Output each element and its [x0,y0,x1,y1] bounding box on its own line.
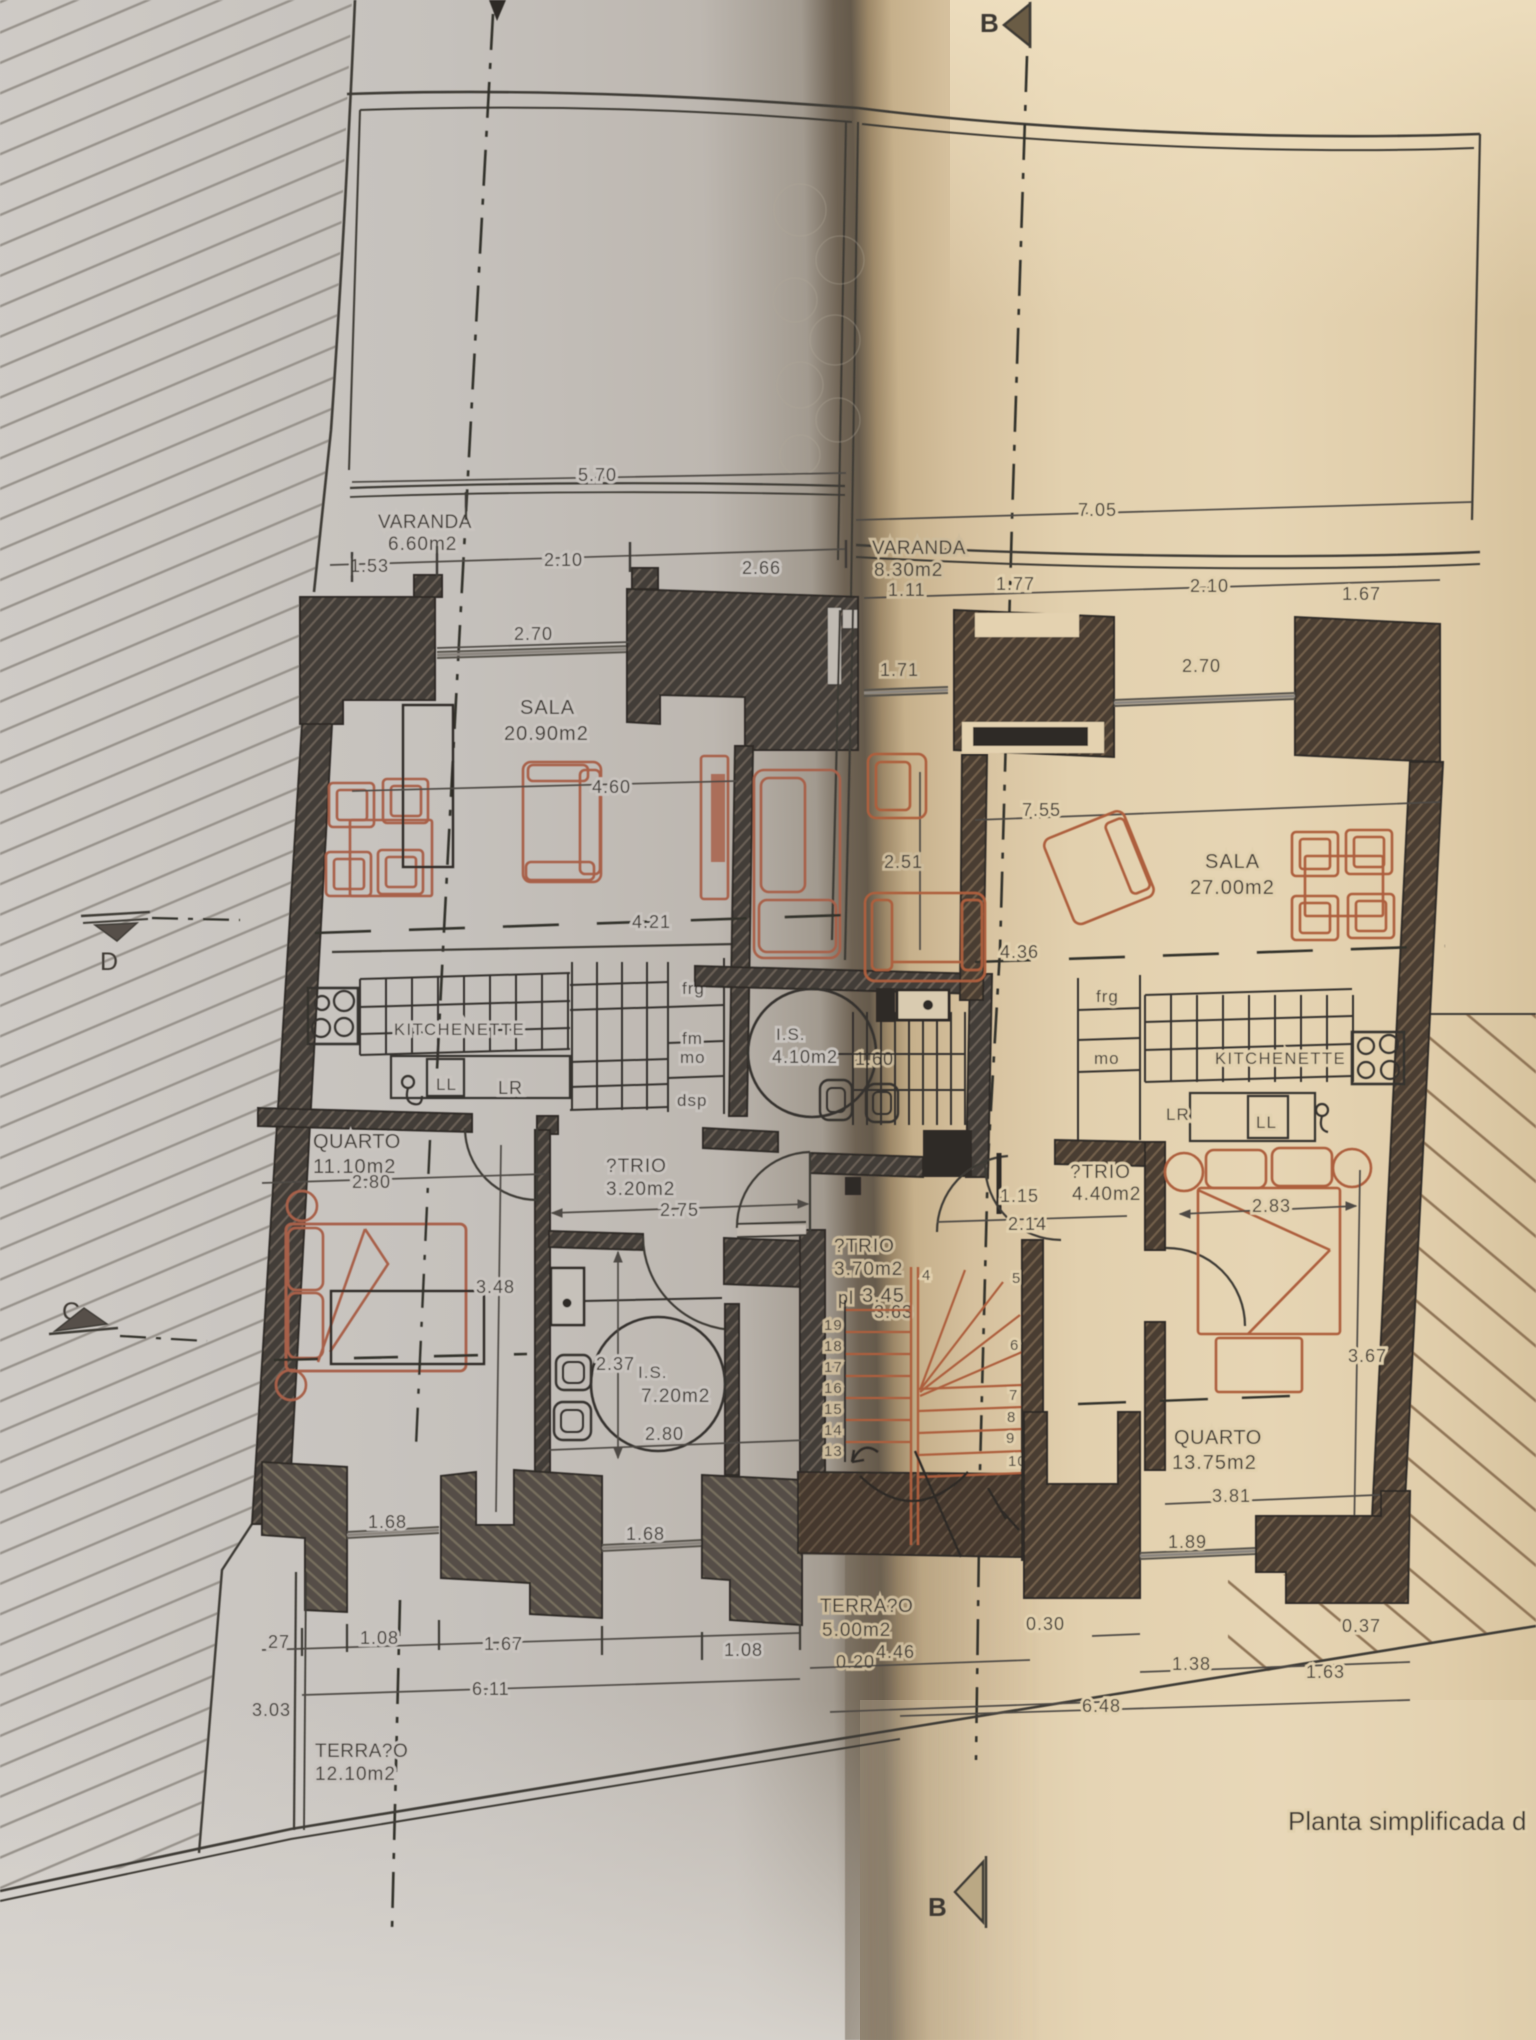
svg-text:mo: mo [680,1048,706,1067]
svg-text:4.60: 4.60 [592,777,631,797]
svg-text:6.48: 6.48 [1082,1696,1121,1716]
svg-text:LR: LR [498,1078,523,1098]
svg-text:4.40m2: 4.40m2 [1072,1184,1141,1205]
svg-text:1.71: 1.71 [880,660,919,680]
svg-text:QUARTO: QUARTO [1174,1427,1262,1449]
svg-text:12.10m2: 12.10m2 [315,1764,396,1785]
svg-text:2.10: 2.10 [544,550,583,570]
svg-text:7: 7 [1009,1387,1018,1404]
svg-text:4: 4 [922,1267,931,1284]
svg-text:4.46: 4.46 [876,1642,915,1662]
svg-text:pl: pl [838,1288,854,1308]
svg-text:2.66: 2.66 [742,558,781,578]
svg-text:D: D [100,948,118,976]
svg-text:2.51: 2.51 [884,852,923,872]
svg-text:3.20m2: 3.20m2 [606,1179,675,1200]
svg-text:1.89: 1.89 [1168,1532,1207,1552]
svg-text:1.63: 1.63 [1306,1662,1345,1682]
svg-text:KITCHENETTE: KITCHENETTE [1215,1050,1346,1068]
svg-text:1.08: 1.08 [724,1640,763,1660]
svg-text:LR: LR [1166,1105,1190,1124]
svg-text:17: 17 [824,1359,843,1376]
svg-text:4.36: 4.36 [1000,942,1039,962]
svg-text:2.10: 2.10 [1190,576,1229,596]
svg-text:mo: mo [1094,1049,1120,1068]
svg-text:1.67: 1.67 [1342,584,1381,604]
svg-text:15: 15 [824,1401,843,1418]
svg-text:3.67: 3.67 [1348,1346,1387,1366]
svg-text:1.67: 1.67 [484,1634,523,1654]
svg-text:2.83: 2.83 [1252,1196,1291,1216]
svg-text:4.21: 4.21 [632,912,671,932]
svg-text:13.75m2: 13.75m2 [1172,1452,1257,1474]
svg-text:2.70: 2.70 [514,624,553,644]
svg-text:2.80: 2.80 [645,1424,684,1444]
svg-text:1.53: 1.53 [350,556,389,576]
svg-text:1.77: 1.77 [996,574,1035,594]
svg-text:dsp: dsp [677,1091,707,1110]
svg-text:LL: LL [436,1075,457,1094]
svg-text:3.81: 3.81 [1212,1486,1251,1506]
svg-text:SALA: SALA [520,697,575,719]
svg-text:6.11: 6.11 [472,1679,510,1699]
svg-text:7.05: 7.05 [1078,500,1117,520]
svg-text:4.10m2: 4.10m2 [772,1047,838,1067]
svg-text:1.68: 1.68 [368,1512,407,1532]
svg-text:16: 16 [824,1380,843,1397]
svg-text:2.70: 2.70 [1182,656,1221,676]
svg-text:QUARTO: QUARTO [313,1131,401,1153]
svg-text:5: 5 [1012,1270,1021,1287]
svg-text:frg: frg [1096,987,1119,1006]
svg-text:8: 8 [1007,1409,1016,1426]
svg-text:0.30: 0.30 [1026,1614,1065,1634]
svg-text:1.38: 1.38 [1172,1654,1211,1674]
svg-text:14: 14 [824,1422,843,1439]
svg-text:1.60: 1.60 [855,1049,894,1069]
svg-text:Planta simplificada d: Planta simplificada d [1288,1806,1526,1836]
svg-text:7.55: 7.55 [1022,800,1061,820]
svg-text:1.68: 1.68 [626,1524,665,1544]
svg-text:LL: LL [1256,1113,1277,1132]
svg-text:TERRA?O: TERRA?O [820,1596,913,1617]
svg-text:27.00m2: 27.00m2 [1190,877,1275,899]
svg-text:0.20: 0.20 [836,1652,875,1672]
svg-text:1.08: 1.08 [360,1628,399,1648]
svg-text:3.63: 3.63 [874,1302,913,1322]
svg-text:B: B [928,1892,947,1922]
svg-text:fm: fm [682,1029,703,1048]
svg-text:6: 6 [1010,1337,1019,1354]
svg-text:3.48: 3.48 [476,1277,515,1297]
svg-text:19: 19 [824,1317,843,1334]
svg-text:VARANDA: VARANDA [872,538,966,559]
svg-text:B: B [980,8,999,38]
svg-text:SALA: SALA [1205,851,1260,873]
svg-text:0.37: 0.37 [1342,1616,1381,1636]
svg-text:KITCHENETTE: KITCHENETTE [394,1021,525,1039]
svg-text:?TRIO: ?TRIO [1070,1162,1131,1183]
svg-text:18: 18 [824,1338,843,1355]
svg-text:I.S.: I.S. [776,1025,806,1044]
svg-text:3.70m2: 3.70m2 [834,1259,903,1280]
svg-text:1.11: 1.11 [888,580,926,600]
svg-text:2.14: 2.14 [1008,1214,1047,1234]
svg-text:6.60m2: 6.60m2 [388,534,457,555]
svg-text:2.75: 2.75 [660,1200,699,1220]
svg-text:?TRIO: ?TRIO [606,1156,667,1177]
svg-text:27: 27 [268,1632,290,1652]
svg-text:9: 9 [1006,1430,1015,1447]
svg-text:TERRA?O: TERRA?O [315,1741,408,1762]
svg-text:VARANDA: VARANDA [378,512,472,533]
svg-text:5.70: 5.70 [578,465,617,485]
svg-text:20.90m2: 20.90m2 [504,723,589,745]
svg-text:5.00m2: 5.00m2 [822,1620,891,1641]
svg-text:2.80: 2.80 [352,1172,391,1192]
svg-text:1.15: 1.15 [1000,1186,1039,1206]
svg-text:3.03: 3.03 [252,1700,291,1720]
svg-text:7.20m2: 7.20m2 [641,1386,710,1407]
svg-text:I.S.: I.S. [638,1363,668,1382]
svg-text:2.37: 2.37 [596,1354,635,1374]
svg-text:13: 13 [824,1443,843,1460]
svg-text:?TRIO: ?TRIO [834,1236,895,1257]
svg-text:8.30m2: 8.30m2 [874,560,943,581]
